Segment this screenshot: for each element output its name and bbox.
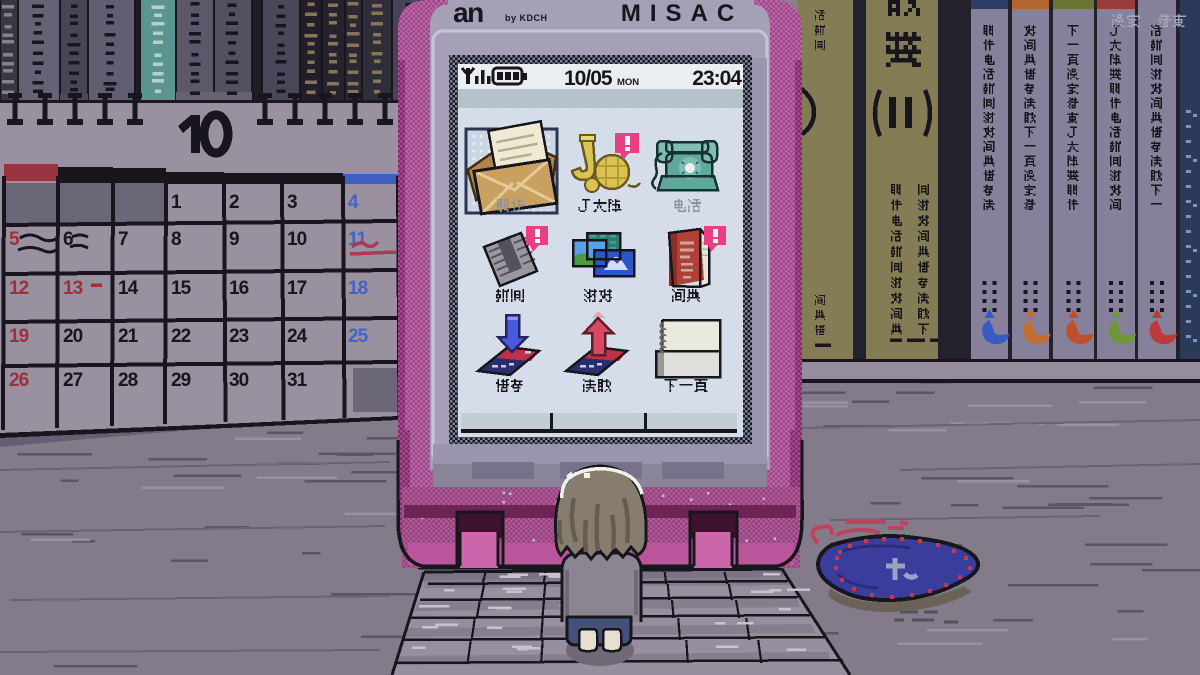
svg-text:MISAC: MISAC	[621, 0, 743, 27]
svg-text:an: an	[453, 0, 483, 28]
svg-text:10/05: 10/05	[564, 67, 613, 90]
svg-text:23:04: 23:04	[692, 67, 742, 90]
svg-text:MON: MON	[617, 77, 639, 88]
svg-text:by KDCH: by KDCH	[505, 13, 548, 23]
